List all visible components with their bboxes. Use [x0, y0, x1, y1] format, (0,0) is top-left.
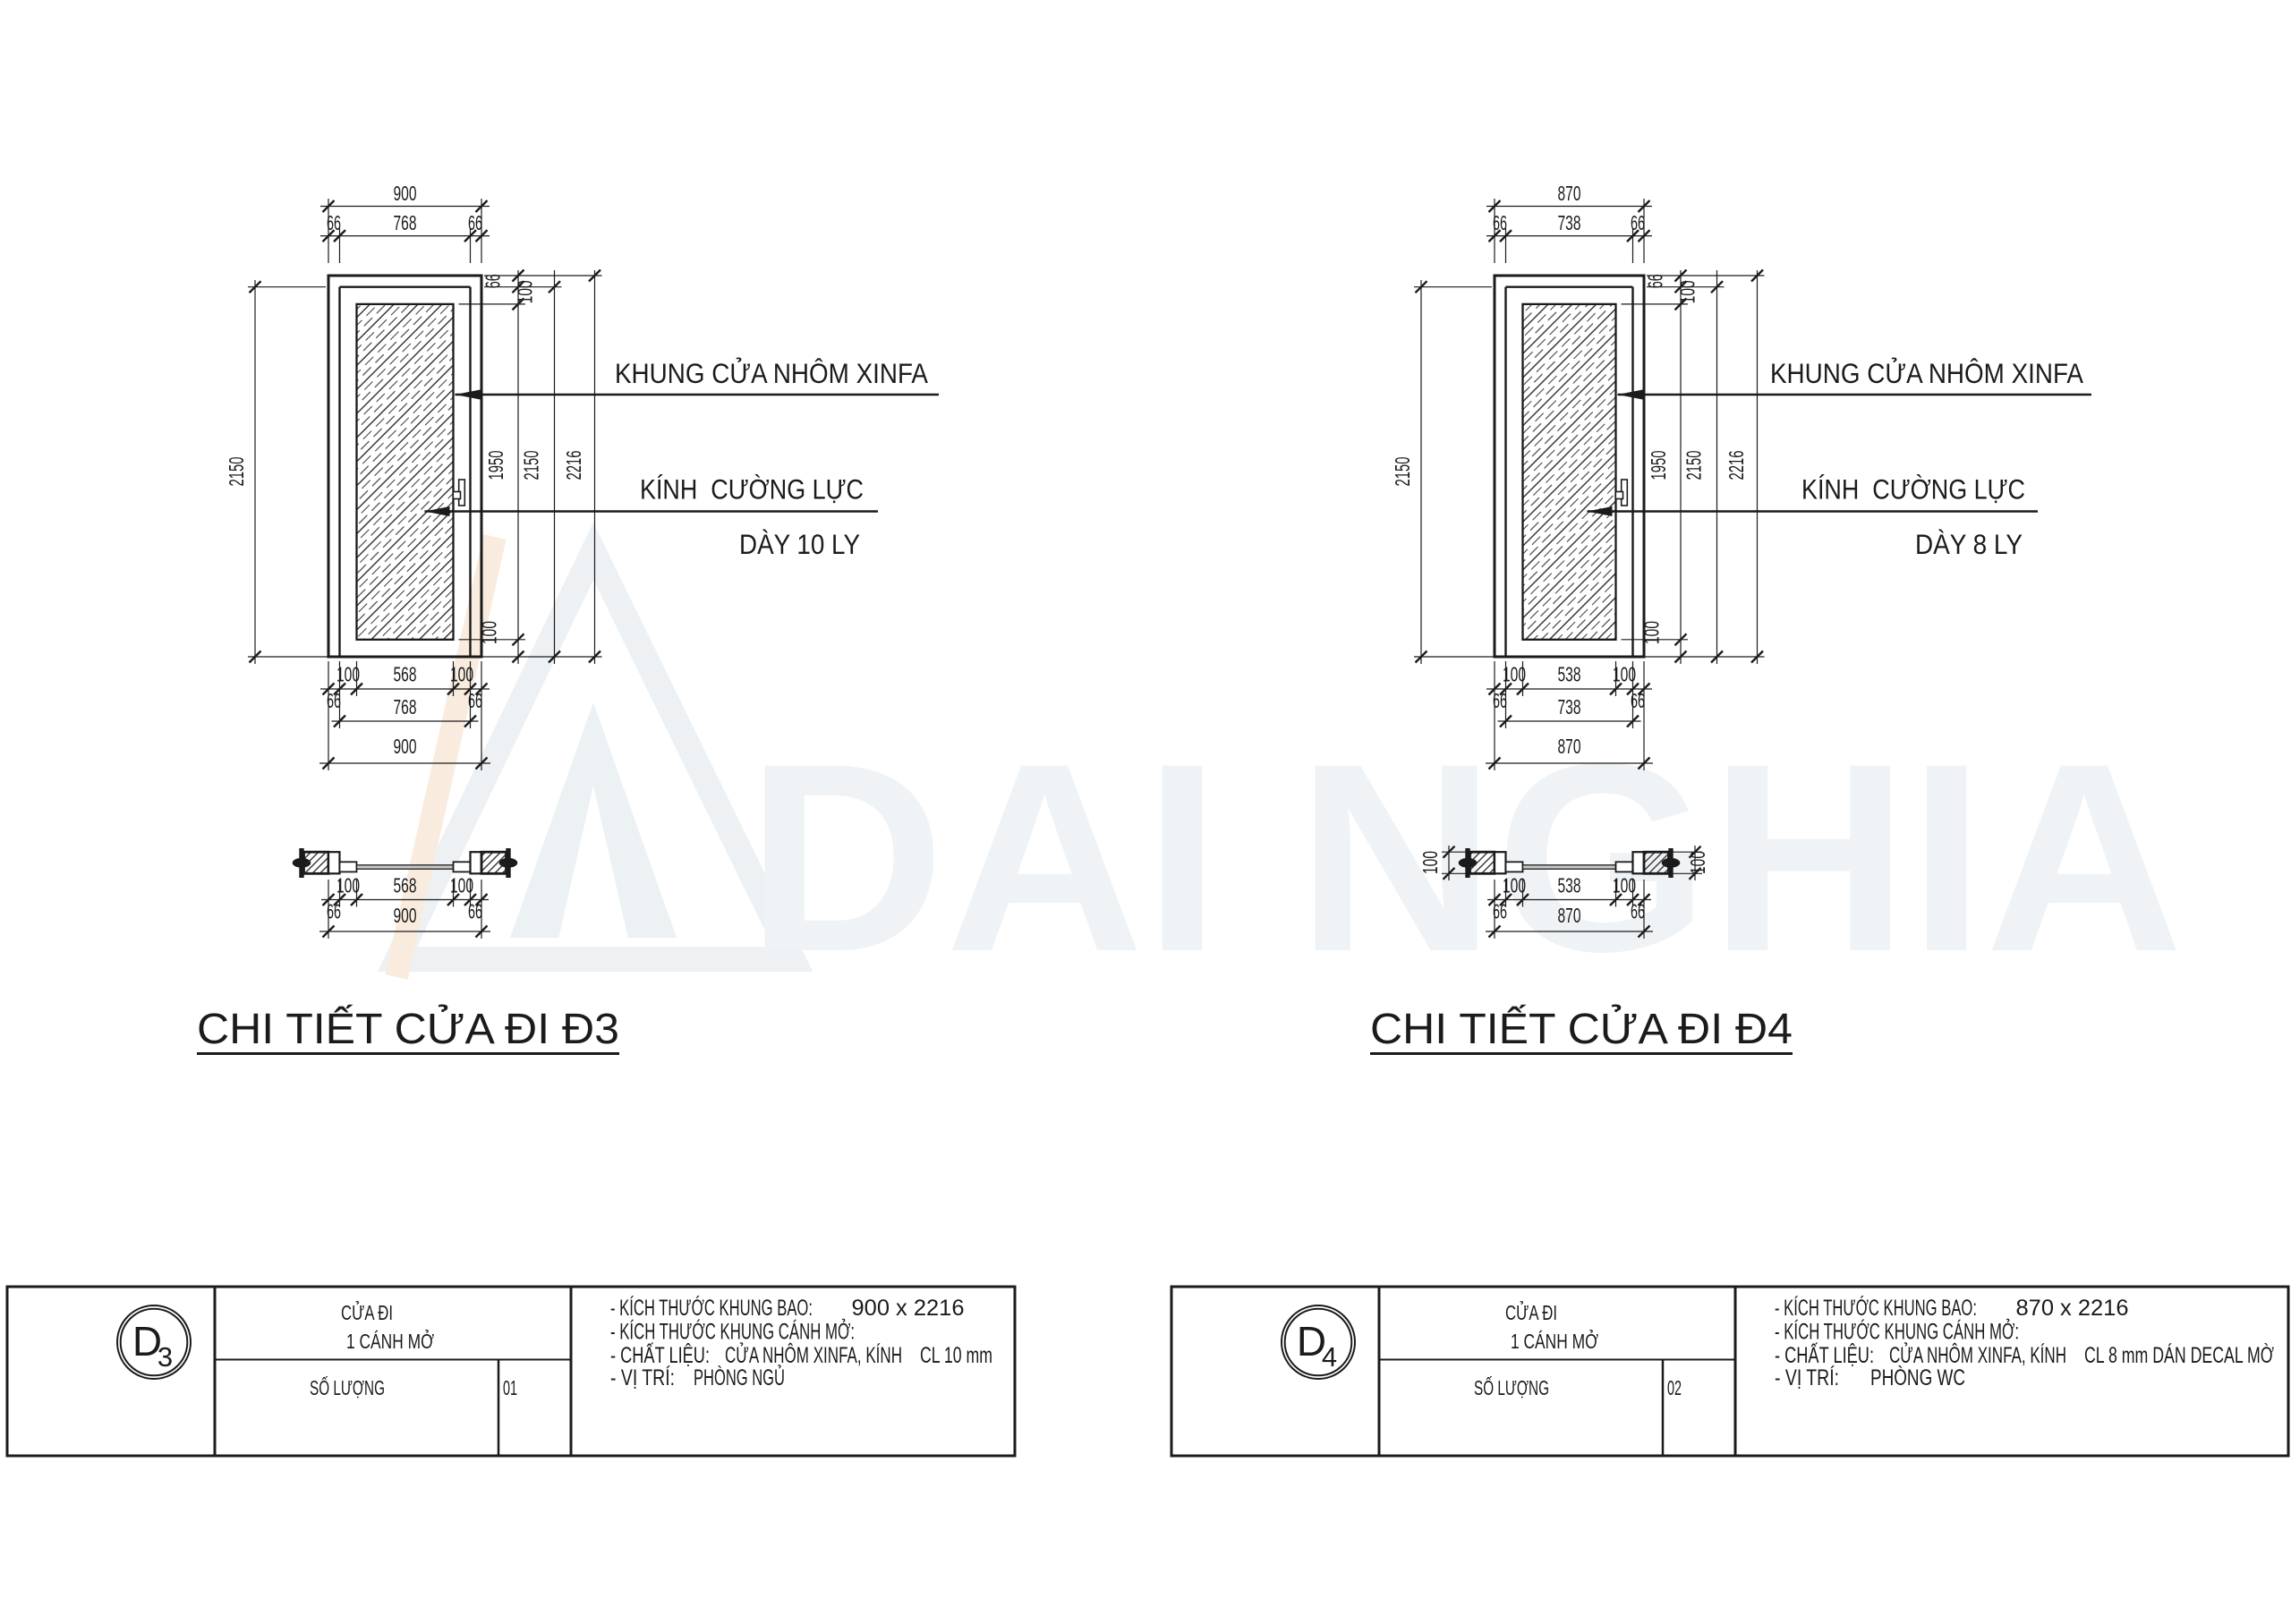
svg-text:- KÍCH THƯỚC KHUNG CÁNH MỞ:: - KÍCH THƯỚC KHUNG CÁNH MỞ: [1775, 1318, 2019, 1345]
svg-text:- KÍCH THƯỚC KHUNG BAO:: - KÍCH THƯỚC KHUNG BAO: [1775, 1295, 1977, 1321]
svg-text:DÀY 8 LY: DÀY 8 LY [1915, 528, 2023, 560]
svg-text:- VỊ TRÍ:: - VỊ TRÍ: [1775, 1365, 1839, 1390]
svg-text:568: 568 [394, 663, 417, 686]
svg-text:870: 870 [1558, 904, 1581, 927]
svg-text:738: 738 [1558, 695, 1581, 718]
svg-text:DAI NGHIA: DAI NGHIA [746, 707, 2184, 1008]
svg-text:CHI TIẾT CỬA ĐI Đ4: CHI TIẾT CỬA ĐI Đ4 [1370, 1004, 1793, 1053]
svg-text:900: 900 [394, 182, 417, 205]
svg-text:100: 100 [514, 280, 537, 303]
svg-text:900: 900 [394, 904, 417, 927]
svg-text:100: 100 [478, 621, 501, 644]
svg-text:DÀY 10 LY: DÀY 10 LY [739, 528, 860, 560]
svg-text:900: 900 [394, 735, 417, 758]
svg-text:1950: 1950 [1647, 451, 1670, 480]
svg-text:2150: 2150 [520, 451, 543, 480]
svg-text:100: 100 [1418, 851, 1442, 874]
svg-text:66: 66 [468, 211, 482, 234]
svg-text:1 CÁNH MỞ: 1 CÁNH MỞ [346, 1328, 434, 1353]
svg-text:870: 870 [1558, 735, 1581, 758]
svg-text:3: 3 [158, 1341, 173, 1373]
svg-text:2150: 2150 [1682, 451, 1706, 480]
svg-text:SỐ LƯỢNG: SỐ LƯỢNG [310, 1375, 385, 1399]
svg-text:900 x 2216: 900 x 2216 [852, 1296, 965, 1321]
svg-text:CỬA NHÔM XINFA, KÍNH: CỬA NHÔM XINFA, KÍNH [725, 1341, 902, 1368]
svg-text:2150: 2150 [225, 457, 248, 487]
svg-text:100: 100 [1676, 280, 1699, 303]
svg-text:100: 100 [1640, 621, 1664, 644]
svg-text:100: 100 [1686, 851, 1709, 874]
svg-text:2216: 2216 [562, 451, 585, 480]
svg-text:738: 738 [1558, 211, 1581, 234]
svg-text:2216: 2216 [1725, 451, 1748, 480]
svg-text:538: 538 [1558, 874, 1581, 897]
svg-text:SỐ LƯỢNG: SỐ LƯỢNG [1474, 1375, 1549, 1399]
svg-text:CL 10 mm: CL 10 mm [920, 1343, 992, 1368]
svg-text:KHUNG CỬA NHÔM XINFA: KHUNG CỬA NHÔM XINFA [1770, 357, 2083, 389]
svg-text:538: 538 [1558, 663, 1581, 686]
svg-text:- VỊ TRÍ:: - VỊ TRÍ: [610, 1365, 675, 1390]
svg-text:KHUNG CỬA NHÔM XINFA: KHUNG CỬA NHÔM XINFA [615, 357, 928, 389]
svg-text:CL 8 mm DÁN DECAL MỜ: CL 8 mm DÁN DECAL MỜ [2084, 1342, 2274, 1368]
svg-text:1950: 1950 [484, 451, 507, 480]
svg-text:66: 66 [1631, 211, 1645, 234]
svg-text:66: 66 [327, 211, 341, 234]
svg-text:768: 768 [394, 695, 417, 718]
svg-text:870: 870 [1558, 182, 1581, 205]
svg-text:768: 768 [394, 211, 417, 234]
svg-text:- CHẤT LIỆU:: - CHẤT LIỆU: [610, 1342, 710, 1368]
svg-text:1 CÁNH MỞ: 1 CÁNH MỞ [1511, 1328, 1598, 1353]
svg-text:- KÍCH THƯỚC KHUNG CÁNH MỞ:: - KÍCH THƯỚC KHUNG CÁNH MỞ: [610, 1318, 855, 1345]
svg-text:66: 66 [1493, 211, 1507, 234]
svg-text:02: 02 [1667, 1376, 1682, 1399]
svg-text:66: 66 [481, 274, 505, 288]
svg-text:CỬA ĐI: CỬA ĐI [341, 1299, 393, 1324]
svg-text:4: 4 [1322, 1341, 1337, 1373]
svg-text:- KÍCH THƯỚC KHUNG BAO:: - KÍCH THƯỚC KHUNG BAO: [610, 1295, 813, 1321]
svg-text:870 x 2216: 870 x 2216 [2016, 1296, 2129, 1321]
svg-text:2150: 2150 [1391, 457, 1414, 487]
svg-text:CỬA NHÔM XINFA, KÍNH: CỬA NHÔM XINFA, KÍNH [1889, 1341, 2066, 1368]
svg-text:568: 568 [394, 874, 417, 897]
svg-text:- CHẤT LIỆU:: - CHẤT LIỆU: [1775, 1342, 1874, 1368]
svg-text:KÍNH CƯỜNG LỰC: KÍNH CƯỜNG LỰC [1801, 473, 2025, 506]
svg-text:PHÒNG WC: PHÒNG WC [1870, 1365, 1965, 1390]
svg-text:66: 66 [1644, 274, 1667, 288]
svg-text:CHI TIẾT CỬA ĐI Đ3: CHI TIẾT CỬA ĐI Đ3 [197, 1004, 619, 1053]
svg-text:KÍNH CƯỜNG LỰC: KÍNH CƯỜNG LỰC [640, 473, 864, 506]
svg-text:01: 01 [503, 1376, 517, 1399]
svg-text:PHÒNG NGỦ: PHÒNG NGỦ [694, 1364, 785, 1390]
svg-text:CỬA ĐI: CỬA ĐI [1505, 1299, 1557, 1324]
